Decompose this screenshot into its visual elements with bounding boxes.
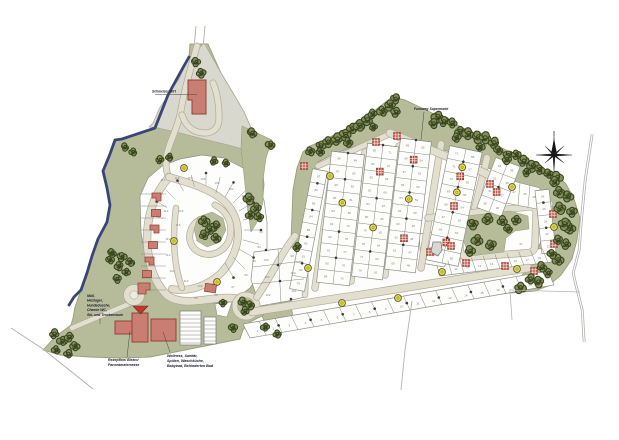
svg-text:52: 52 <box>493 176 497 180</box>
svg-text:39: 39 <box>510 169 514 173</box>
svg-text:113: 113 <box>166 237 171 241</box>
svg-text:37: 37 <box>501 194 505 198</box>
svg-text:103: 103 <box>290 271 295 275</box>
svg-text:21: 21 <box>519 242 523 246</box>
svg-text:82: 82 <box>304 241 308 245</box>
svg-text:07: 07 <box>231 285 235 289</box>
svg-text:24: 24 <box>544 220 548 224</box>
svg-text:Spülen, Waschküche,: Spülen, Waschküche, <box>167 359 204 363</box>
svg-text:116: 116 <box>179 209 184 213</box>
svg-text:10: 10 <box>400 305 404 309</box>
svg-text:Chemie WC,: Chemie WC, <box>87 308 107 312</box>
svg-text:52: 52 <box>455 231 459 235</box>
svg-text:98: 98 <box>337 157 341 161</box>
svg-text:102: 102 <box>228 187 233 191</box>
svg-text:77: 77 <box>360 255 364 259</box>
svg-text:Ski- und Trockenraum: Ski- und Trockenraum <box>87 313 123 317</box>
svg-text:Babybad, Behinderten Bad: Babybad, Behinderten Bad <box>167 364 214 368</box>
svg-text:65: 65 <box>399 196 403 200</box>
svg-text:Schmelzer Wirt: Schmelzer Wirt <box>152 90 177 94</box>
svg-text:100: 100 <box>263 258 268 262</box>
svg-text:47: 47 <box>408 250 412 254</box>
svg-text:76: 76 <box>342 263 346 267</box>
svg-text:64: 64 <box>398 209 402 213</box>
svg-text:53: 53 <box>418 172 422 176</box>
svg-text:67: 67 <box>382 204 386 208</box>
svg-text:84: 84 <box>309 215 313 219</box>
svg-text:13: 13 <box>448 296 452 300</box>
svg-text:67: 67 <box>442 215 446 219</box>
svg-text:93: 93 <box>330 222 334 226</box>
svg-text:25: 25 <box>542 207 546 211</box>
svg-text:69: 69 <box>406 144 410 148</box>
svg-text:62: 62 <box>374 270 378 274</box>
svg-text:97: 97 <box>336 170 340 174</box>
svg-text:68: 68 <box>383 191 387 195</box>
svg-text:80: 80 <box>299 268 303 272</box>
svg-text:76: 76 <box>358 268 362 272</box>
svg-text:23: 23 <box>545 232 549 236</box>
svg-text:17: 17 <box>526 258 530 262</box>
svg-text:84: 84 <box>354 159 358 163</box>
svg-text:18: 18 <box>537 256 541 260</box>
svg-text:22: 22 <box>547 245 551 249</box>
svg-text:101: 101 <box>291 289 296 293</box>
svg-text:50: 50 <box>413 211 417 215</box>
svg-text:63: 63 <box>396 222 400 226</box>
svg-text:78: 78 <box>345 237 349 241</box>
svg-text:54: 54 <box>460 206 464 210</box>
svg-text:99: 99 <box>290 254 294 258</box>
svg-text:26: 26 <box>541 194 545 198</box>
svg-text:105: 105 <box>200 177 205 181</box>
svg-text:Panoramaterrasse: Panoramaterrasse <box>108 363 139 367</box>
svg-text:65: 65 <box>379 230 383 234</box>
svg-text:46: 46 <box>407 263 411 267</box>
svg-text:57: 57 <box>468 168 472 172</box>
svg-text:05: 05 <box>252 259 256 263</box>
svg-text:79: 79 <box>346 224 350 228</box>
svg-text:55: 55 <box>421 146 425 150</box>
svg-text:92: 92 <box>328 235 332 239</box>
svg-text:70: 70 <box>387 164 391 168</box>
svg-text:89: 89 <box>324 275 328 279</box>
svg-text:82: 82 <box>368 189 372 193</box>
svg-text:95: 95 <box>333 196 337 200</box>
svg-text:36: 36 <box>496 206 500 210</box>
svg-text:61: 61 <box>393 248 397 252</box>
svg-text:55: 55 <box>463 193 467 197</box>
svg-text:71: 71 <box>388 151 392 155</box>
svg-text:58: 58 <box>471 155 475 159</box>
svg-text:96: 96 <box>334 183 338 187</box>
svg-text:85: 85 <box>373 149 377 153</box>
svg-text:26: 26 <box>523 192 527 196</box>
svg-text:03: 03 <box>259 230 263 234</box>
svg-text:38: 38 <box>505 181 509 185</box>
svg-text:83: 83 <box>370 175 374 179</box>
svg-text:48: 48 <box>410 237 414 241</box>
svg-text:110: 110 <box>184 279 189 283</box>
svg-text:91: 91 <box>327 248 331 252</box>
svg-text:81: 81 <box>302 255 306 259</box>
svg-text:13: 13 <box>478 264 482 268</box>
svg-text:14: 14 <box>490 262 494 266</box>
svg-text:15: 15 <box>480 291 484 295</box>
svg-text:66: 66 <box>380 217 384 221</box>
svg-text:62: 62 <box>395 235 399 239</box>
svg-text:109: 109 <box>197 284 202 288</box>
svg-text:Rezeption/ Bistro/: Rezeption/ Bistro/ <box>108 358 140 362</box>
svg-text:Müll,: Müll, <box>87 294 95 298</box>
svg-text:81: 81 <box>349 198 353 202</box>
svg-text:80: 80 <box>348 211 352 215</box>
svg-text:111: 111 <box>170 269 175 273</box>
svg-text:79: 79 <box>297 281 301 285</box>
svg-text:104: 104 <box>264 275 269 279</box>
svg-text:Fussweg Supermarkt: Fussweg Supermarkt <box>414 107 449 111</box>
svg-text:Wellness, Sanitär,: Wellness, Sanitär, <box>167 354 198 358</box>
svg-text:63: 63 <box>375 257 379 261</box>
svg-text:72: 72 <box>455 152 459 156</box>
svg-text:68: 68 <box>404 157 408 161</box>
svg-text:53: 53 <box>498 164 502 168</box>
svg-text:83: 83 <box>352 172 356 176</box>
svg-text:14: 14 <box>464 294 468 298</box>
svg-text:04: 04 <box>257 245 261 249</box>
svg-text:119: 119 <box>188 176 193 180</box>
svg-text:75: 75 <box>340 276 344 280</box>
svg-text:Heizlager,: Heizlager, <box>87 299 103 303</box>
svg-text:Hundedusche,: Hundedusche, <box>87 303 110 307</box>
svg-text:16: 16 <box>496 288 500 292</box>
svg-text:86: 86 <box>315 188 319 192</box>
svg-text:103: 103 <box>214 181 219 185</box>
svg-text:08: 08 <box>214 293 218 297</box>
svg-text:69: 69 <box>385 177 389 181</box>
svg-text:66: 66 <box>439 228 443 232</box>
svg-text:50: 50 <box>484 201 488 205</box>
svg-text:85: 85 <box>312 201 316 205</box>
svg-text:11: 11 <box>454 267 457 271</box>
svg-text:87: 87 <box>317 175 321 179</box>
svg-text:69: 69 <box>447 190 451 194</box>
svg-text:68: 68 <box>444 202 448 206</box>
svg-text:12: 12 <box>432 299 436 303</box>
svg-text:51: 51 <box>488 189 492 193</box>
svg-text:84: 84 <box>371 162 375 166</box>
svg-text:117: 117 <box>161 178 166 182</box>
svg-text:81: 81 <box>366 202 370 206</box>
svg-text:49: 49 <box>412 224 416 228</box>
svg-text:78: 78 <box>362 242 366 246</box>
svg-text:60: 60 <box>391 262 395 266</box>
svg-text:71: 71 <box>452 164 456 168</box>
svg-text:51: 51 <box>415 198 419 202</box>
svg-text:82: 82 <box>351 185 355 189</box>
svg-text:77: 77 <box>343 250 347 254</box>
svg-text:118: 118 <box>175 176 180 180</box>
svg-text:56: 56 <box>466 180 470 184</box>
svg-text:80: 80 <box>365 215 369 219</box>
svg-text:53: 53 <box>458 218 462 222</box>
svg-text:50: 50 <box>450 256 454 260</box>
svg-text:67: 67 <box>403 170 407 174</box>
svg-text:102: 102 <box>265 293 270 297</box>
svg-text:66: 66 <box>401 183 405 187</box>
svg-text:112: 112 <box>166 253 171 257</box>
svg-text:64: 64 <box>377 244 381 248</box>
svg-text:90: 90 <box>325 261 329 265</box>
svg-text:94: 94 <box>331 209 335 213</box>
svg-text:54: 54 <box>420 159 424 163</box>
svg-text:79: 79 <box>363 229 367 233</box>
svg-text:11: 11 <box>416 302 419 306</box>
svg-text:16: 16 <box>514 259 518 263</box>
svg-text:09: 09 <box>194 296 198 300</box>
svg-text:06: 06 <box>244 273 248 277</box>
svg-text:52: 52 <box>416 185 420 189</box>
svg-text:114: 114 <box>164 209 169 213</box>
svg-text:70: 70 <box>450 177 454 181</box>
svg-text:83: 83 <box>307 228 311 232</box>
svg-text:115: 115 <box>176 223 181 227</box>
